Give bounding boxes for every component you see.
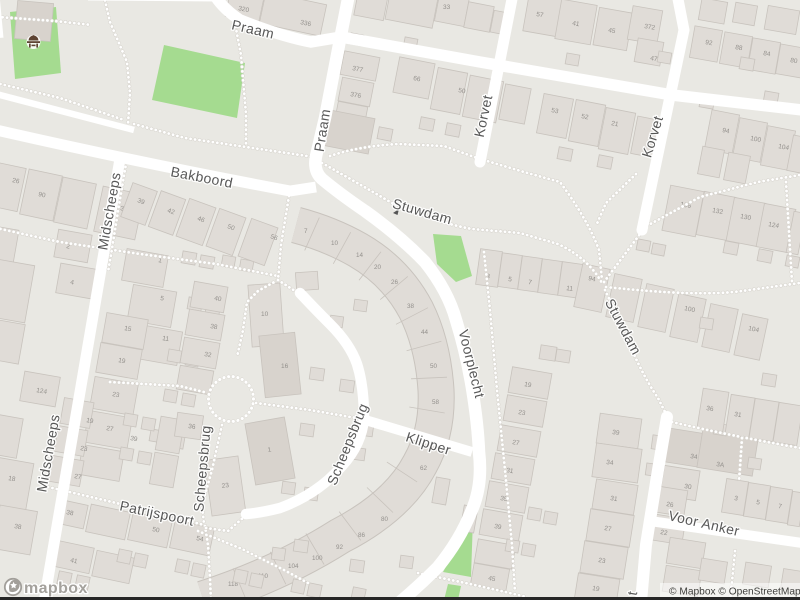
svg-text:36: 36 [188, 423, 197, 431]
svg-text:30: 30 [684, 483, 693, 491]
svg-text:11: 11 [566, 285, 574, 293]
svg-text:34: 34 [690, 453, 699, 461]
svg-text:23: 23 [221, 482, 230, 490]
svg-text:58: 58 [432, 399, 440, 406]
svg-text:38: 38 [407, 303, 415, 310]
svg-text:22: 22 [660, 529, 669, 537]
svg-text:104: 104 [288, 563, 299, 570]
svg-text:23: 23 [598, 557, 607, 565]
svg-text:10: 10 [331, 240, 339, 247]
svg-text:26: 26 [391, 279, 399, 286]
svg-text:39: 39 [612, 429, 621, 437]
svg-text:10: 10 [261, 311, 269, 318]
svg-text:© Mapbox © OpenStreetMap: © Mapbox © OpenStreetMap [669, 587, 800, 598]
svg-text:86: 86 [358, 532, 366, 539]
svg-text:62: 62 [420, 465, 428, 472]
svg-text:27: 27 [604, 525, 613, 533]
svg-text:16: 16 [281, 363, 289, 370]
svg-text:44: 44 [421, 329, 429, 336]
svg-text:mapbox: mapbox [24, 580, 88, 597]
svg-text:31: 31 [610, 495, 619, 503]
svg-text:14: 14 [356, 252, 364, 259]
svg-text:33: 33 [443, 4, 451, 11]
svg-text:50: 50 [430, 363, 438, 370]
svg-text:34: 34 [606, 459, 615, 467]
svg-text:20: 20 [374, 264, 382, 271]
svg-text:80: 80 [381, 516, 389, 523]
svg-text:19: 19 [592, 585, 601, 593]
svg-text:31: 31 [734, 411, 743, 419]
svg-text:92: 92 [336, 544, 344, 551]
svg-text:7: 7 [304, 228, 308, 235]
svg-text:36: 36 [706, 405, 715, 413]
svg-text:100: 100 [312, 555, 323, 562]
